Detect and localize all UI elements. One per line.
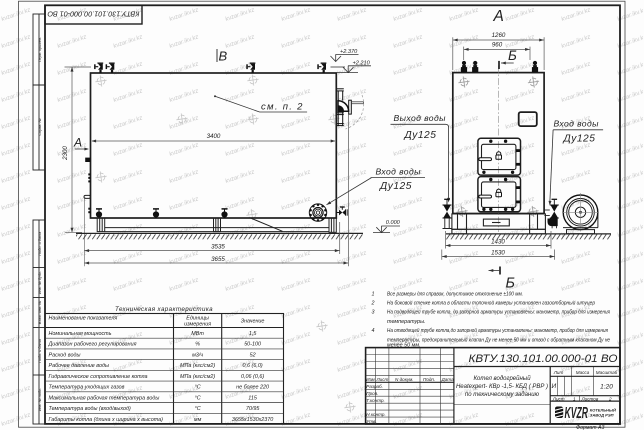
svg-text:Значение: Значение xyxy=(241,319,265,325)
svg-text:Формат А3: Формат А3 xyxy=(576,425,604,430)
svg-text:°С: °С xyxy=(195,385,201,391)
svg-text:2: 2 xyxy=(608,396,612,401)
svg-text:На отводящей трубе котла,до за: На отводящей трубе котла,до запорной арм… xyxy=(387,327,608,334)
svg-text:960: 960 xyxy=(492,42,503,49)
svg-text:Вход воды: Вход воды xyxy=(554,119,600,129)
svg-text:И: И xyxy=(551,383,556,390)
svg-text:3400: 3400 xyxy=(207,133,221,140)
svg-text:МПа (кгс/см2): МПа (кгс/см2) xyxy=(180,374,215,380)
svg-text:мм: мм xyxy=(194,417,202,423)
svg-text:Подп. и дата: Подп. и дата xyxy=(38,232,42,256)
svg-text:3655х1530х2370: 3655х1530х2370 xyxy=(232,417,273,423)
svg-text:Листов: Листов xyxy=(581,396,599,401)
svg-text:0.000: 0.000 xyxy=(386,220,401,226)
svg-text:температуры.: температуры. xyxy=(387,319,426,325)
svg-text:2: 2 xyxy=(371,301,375,307)
svg-text:Гидравлическое сопротивление к: Гидравлическое сопротивление котла xyxy=(49,374,148,380)
svg-text:Перв. примен.: Перв. примен. xyxy=(38,37,42,62)
svg-text:2300: 2300 xyxy=(62,146,69,161)
svg-text:0,06 (0,6): 0,06 (0,6) xyxy=(241,374,264,380)
svg-text:Лист: Лист xyxy=(376,377,389,382)
svg-text:На подводящей трубе котла, до: На подводящей трубе котла, до запорной а… xyxy=(387,309,610,316)
svg-text:ЗАВОД РЭП: ЗАВОД РЭП xyxy=(590,413,614,418)
svg-text:Лист: Лист xyxy=(552,396,565,401)
svg-text:не более 220: не более 220 xyxy=(236,385,269,391)
svg-text:Температура воды (вход/выход): Температура воды (вход/выход) xyxy=(49,406,132,412)
svg-text:Вход воды: Вход воды xyxy=(376,167,422,177)
svg-text:Дата: Дата xyxy=(441,377,455,382)
svg-text:Ду125: Ду125 xyxy=(563,133,596,144)
svg-text:Масштаб: Масштаб xyxy=(596,370,618,375)
svg-text:°С: °С xyxy=(195,395,201,401)
svg-text:Н.контр.: Н.контр. xyxy=(366,412,385,417)
svg-text:52: 52 xyxy=(250,352,256,358)
svg-text:Расход воды: Расход воды xyxy=(49,352,81,358)
svg-text:°С: °С xyxy=(195,406,201,412)
svg-text:Пров.: Пров. xyxy=(366,391,378,396)
svg-text:КВТУ.130.101.00.000-01 ВО: КВТУ.130.101.00.000-01 ВО xyxy=(47,10,140,17)
svg-text:Ду125: Ду125 xyxy=(404,130,437,141)
svg-text:Разраб.: Разраб. xyxy=(366,384,383,389)
svg-text:Габариты котла (длина х ширина: Габариты котла (длина х ширина х высота) xyxy=(49,417,164,423)
svg-text:Диапазон рабочего регулировани: Диапазон рабочего регулирования xyxy=(48,342,137,348)
svg-text:по техническому заданию: по техническому заданию xyxy=(465,392,540,398)
svg-text:А: А xyxy=(73,136,82,150)
svg-text:%: % xyxy=(195,342,200,348)
svg-text:3: 3 xyxy=(372,310,375,316)
svg-text:Котел водогрейный: Котел водогрейный xyxy=(473,375,531,382)
svg-text:Наименование показателя: Наименование показателя xyxy=(49,316,118,322)
svg-text:Б: Б xyxy=(508,48,517,63)
svg-text:Heatexpert- КВр -1,5- КБД ( РВ: Heatexpert- КВр -1,5- КБД ( РВР ) xyxy=(456,384,548,390)
svg-text:KVZR: KVZR xyxy=(565,405,589,422)
svg-text:см. п. 2: см. п. 2 xyxy=(261,102,304,113)
svg-text:Лит: Лит xyxy=(553,370,564,375)
svg-text:Справ. №: Справ. № xyxy=(38,118,42,135)
svg-text:В: В xyxy=(219,49,228,64)
svg-text:Масса: Масса xyxy=(576,370,590,375)
svg-text:Утв.: Утв. xyxy=(366,419,376,424)
svg-text:МПа (кгс/см2): МПа (кгс/см2) xyxy=(180,363,215,369)
svg-text:Выход воды: Выход воды xyxy=(394,113,447,123)
svg-text:1: 1 xyxy=(372,291,375,297)
svg-text:+2.370: +2.370 xyxy=(340,49,358,55)
svg-text:Б: Б xyxy=(506,276,515,292)
svg-text:Температура уходящих газов: Температура уходящих газов xyxy=(49,385,125,391)
svg-text:Инв. № подл.: Инв. № подл. xyxy=(38,388,42,412)
svg-text:+2.210: +2.210 xyxy=(353,60,371,66)
svg-text:Изм.: Изм. xyxy=(366,377,376,382)
svg-text:Ду125: Ду125 xyxy=(379,181,412,192)
svg-text:Рабочее давление воды: Рабочее давление воды xyxy=(49,363,109,369)
svg-text:Т.контр.: Т.контр. xyxy=(366,398,385,403)
svg-text:1530: 1530 xyxy=(491,250,505,257)
svg-text:1:20: 1:20 xyxy=(600,384,613,391)
svg-text:1260: 1260 xyxy=(492,32,506,39)
svg-text:4: 4 xyxy=(372,328,375,334)
svg-text:м3/ч: м3/ч xyxy=(192,352,203,358)
svg-text:1430: 1430 xyxy=(491,239,505,246)
svg-text:0,6 (6,0): 0,6 (6,0) xyxy=(243,363,263,369)
svg-text:На боковой стенке котла в обла: На боковой стенке котла в области топочн… xyxy=(387,300,595,307)
svg-text:Взам. инв. №: Взам. инв. № xyxy=(38,301,42,324)
svg-text:Подп. и дата: Подп. и дата xyxy=(38,339,42,363)
svg-text:Подп.: Подп. xyxy=(423,377,435,382)
svg-text:КВТУ.130.101.00.000-01 ВО: КВТУ.130.101.00.000-01 ВО xyxy=(469,353,618,365)
svg-text:Номинальная мощность: Номинальная мощность xyxy=(49,331,112,337)
svg-text:измерения: измерения xyxy=(184,322,211,328)
svg-text:1,5: 1,5 xyxy=(249,331,257,337)
svg-text:3535: 3535 xyxy=(211,244,225,251)
svg-text:1: 1 xyxy=(573,396,576,401)
svg-text:Все размеры для справок, допус: Все размеры для справок, допустимое откл… xyxy=(387,291,523,297)
svg-text:Техническая характеристика: Техническая характеристика xyxy=(115,306,213,313)
svg-text:N докум.: N докум. xyxy=(395,377,414,382)
svg-text:Максимальная рабочая температу: Максимальная рабочая температура воды xyxy=(49,395,160,401)
svg-text:3655: 3655 xyxy=(211,256,225,263)
svg-text:Инв. № дубл.: Инв. № дубл. xyxy=(38,271,42,294)
svg-text:115: 115 xyxy=(248,395,258,401)
svg-text:МВт: МВт xyxy=(191,331,204,337)
svg-text:А: А xyxy=(493,8,504,25)
svg-text:50-100: 50-100 xyxy=(244,342,261,348)
svg-text:70/95: 70/95 xyxy=(246,406,260,412)
